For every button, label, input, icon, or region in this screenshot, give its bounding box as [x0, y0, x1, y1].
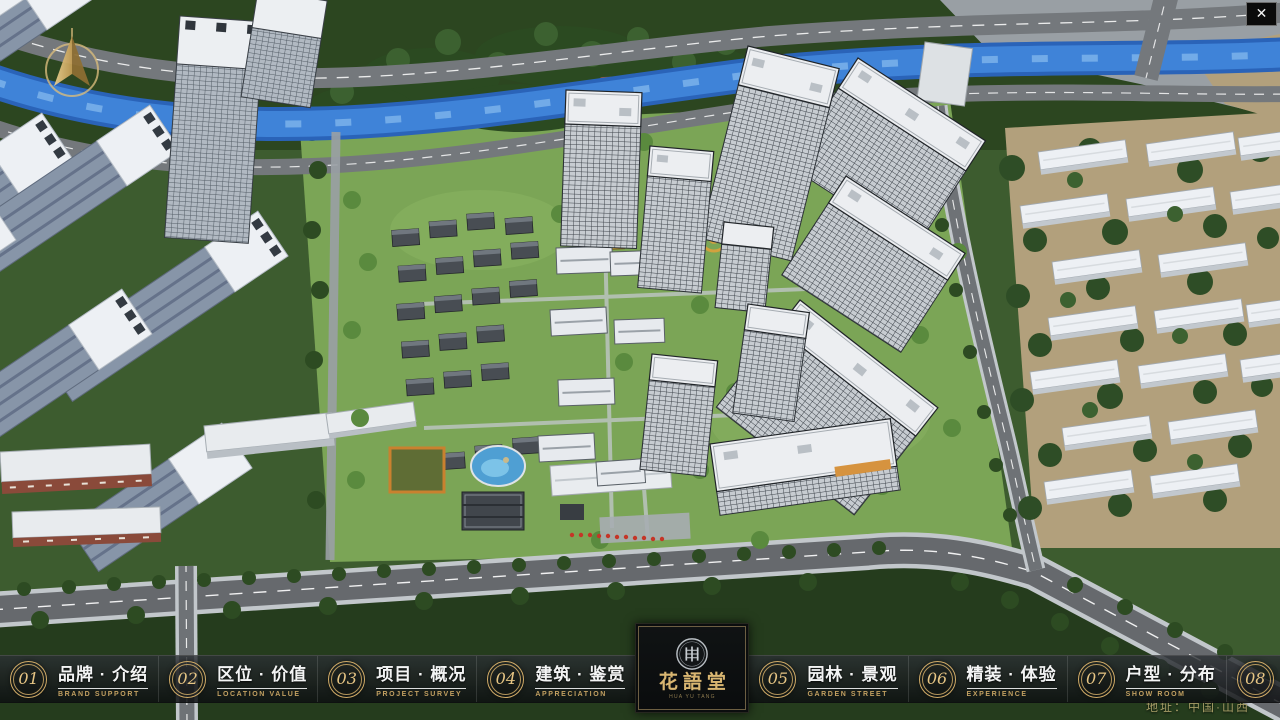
nav-item-underline [1126, 688, 1216, 689]
seal-emblem-icon [675, 637, 709, 671]
nav-item-project-overview[interactable]: 03 项目 · 概况 PROJECT SURVEY [317, 656, 476, 702]
nav-item-brand-intro[interactable]: 01 品牌 · 介绍 BRAND SUPPORT [0, 656, 158, 702]
nav-item-underline [217, 688, 307, 689]
compass-icon [30, 22, 114, 106]
nav-item-underline [967, 688, 1057, 689]
nav-item-label: 园林 · 景观 [807, 660, 897, 685]
project-logo-panel[interactable]: 花語堂 HUA YU TANG [635, 623, 749, 713]
nav-item-interior-experience[interactable]: 06 精装 · 体验 EXPERIENCE [908, 656, 1067, 702]
nav-number-badge: 05 [759, 661, 796, 698]
bottom-nav: 01 品牌 · 介绍 BRAND SUPPORT 02 区位 · 价值 LOCA… [0, 655, 1280, 703]
nav-item-architecture[interactable]: 04 建筑 · 鉴赏 APPRECIATION [476, 656, 635, 702]
nav-item-label: 区位 · 价值 [217, 660, 307, 685]
sandbox-viewer: ✕ 01 品牌 · 介绍 BRAND SUPPORT 02 区位 · 价值 LO… [0, 0, 1280, 720]
close-button[interactable]: ✕ [1246, 2, 1277, 26]
nav-number-badge: 08 [1237, 661, 1274, 698]
project-logo-subtitle: HUA YU TANG [669, 694, 716, 700]
nav-item-label: 品牌 · 介绍 [58, 660, 148, 685]
nav-number-badge: 07 [1078, 661, 1115, 698]
nav-number-badge: 04 [487, 661, 524, 698]
nav-item-underline [807, 688, 897, 689]
nav-number-badge: 01 [10, 661, 47, 698]
nav-left-group: 01 品牌 · 介绍 BRAND SUPPORT 02 区位 · 价值 LOCA… [0, 656, 635, 702]
nav-item-subtitle: APPRECIATION [535, 691, 625, 698]
nav-item-subtitle: EXPERIENCE [967, 691, 1057, 698]
nav-item-subtitle: SHOW ROOM [1126, 691, 1216, 698]
nav-item-subtitle: PROJECT SURVEY [376, 691, 466, 698]
nav-item-label: 建筑 · 鉴赏 [535, 660, 625, 685]
nav-item-location-value[interactable]: 02 区位 · 价值 LOCATION VALUE [158, 656, 317, 702]
project-logo-title: 花語堂 [654, 673, 731, 692]
nav-number-badge: 03 [328, 661, 365, 698]
nav-item-underline [58, 688, 148, 689]
nav-item-subtitle: GARDEN STREET [807, 691, 897, 698]
nav-item-underline [535, 688, 625, 689]
nav-item-label: 户型 · 分布 [1126, 660, 1216, 685]
nav-right-group: 05 园林 · 景观 GARDEN STREET 06 精装 · 体验 EXPE… [749, 656, 1280, 702]
nav-number-badge: 06 [919, 661, 956, 698]
nav-number-badge: 02 [169, 661, 206, 698]
nav-item-label: 精装 · 体验 [967, 660, 1057, 685]
nav-item-room-view[interactable]: 08 一房 · 一景 COMMUNITY [1226, 656, 1280, 702]
masterplan-render[interactable] [0, 0, 1280, 720]
nav-item-label: 项目 · 概况 [376, 660, 466, 685]
nav-item-underline [376, 688, 466, 689]
nav-item-floorplan-distribution[interactable]: 07 户型 · 分布 SHOW ROOM [1067, 656, 1226, 702]
nav-item-subtitle: LOCATION VALUE [217, 691, 307, 698]
nav-item-subtitle: BRAND SUPPORT [58, 691, 148, 698]
nav-item-garden-landscape[interactable]: 05 园林 · 景观 GARDEN STREET [749, 656, 907, 702]
